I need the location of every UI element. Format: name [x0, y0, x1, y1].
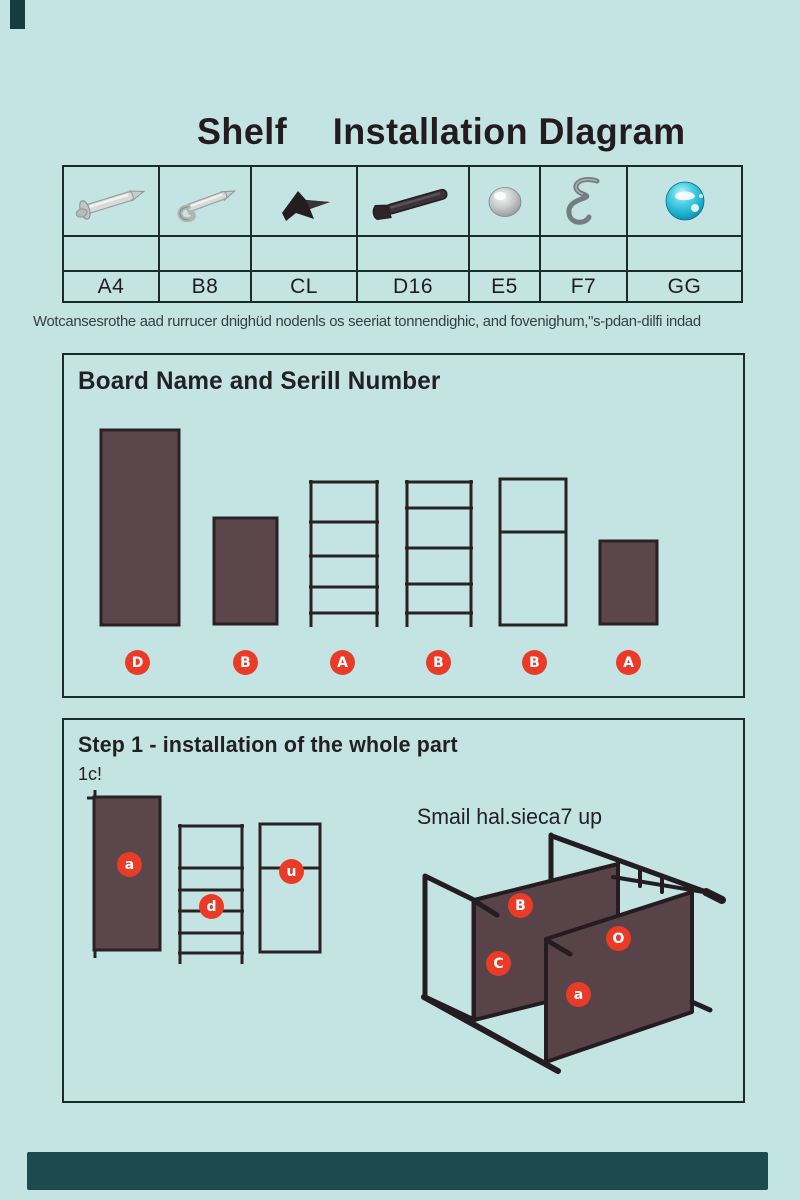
top-left-accent-bar: [10, 0, 25, 29]
part-label-cell: A4: [64, 272, 158, 301]
part-label: A4: [98, 275, 125, 299]
silver-hook-screw-icon: [162, 171, 248, 231]
part-image-cell: [541, 167, 626, 235]
part-label: F7: [571, 275, 597, 299]
empty-cell: [541, 237, 626, 270]
step-badge: d: [199, 894, 224, 919]
page-title: ShelfInstallation Dlagram: [197, 111, 686, 153]
board-badge: B: [522, 650, 547, 675]
black-clip-icon: [254, 171, 354, 231]
part-label: B8: [192, 275, 219, 299]
part-label-cell: F7: [541, 272, 626, 301]
board-ladder-frame-2: [405, 480, 473, 627]
board-badge: A: [616, 650, 641, 675]
empty-cell: [160, 237, 250, 270]
board-frame-divided: [500, 479, 566, 625]
silver-ball-icon: [475, 171, 535, 231]
part-label-cell: D16: [358, 272, 468, 301]
bottom-accent-bar: [27, 1152, 768, 1190]
s-hook-icon: [549, 169, 619, 233]
title-word-shelf: Shelf: [197, 111, 287, 152]
dark-bolt-icon: [360, 171, 466, 231]
part-label: D16: [393, 275, 433, 299]
step-shapes-drawing: [64, 720, 743, 1101]
title-word-diagram: Installation Dlagram: [333, 111, 686, 152]
teal-ball-icon: [645, 168, 725, 234]
empty-cell: [252, 237, 356, 270]
part-image-cell: [252, 167, 356, 235]
empty-cell: [628, 237, 741, 270]
part-image-cell: [358, 167, 468, 235]
iso-badge: C: [486, 951, 511, 976]
board-solid-tall: [101, 430, 179, 625]
part-label-cell: B8: [160, 272, 250, 301]
board-ladder-frame-1: [309, 480, 379, 627]
board-solid-small: [600, 541, 657, 624]
step-badge: a: [117, 852, 142, 877]
part-image-cell: [628, 167, 741, 235]
board-badge: B: [426, 650, 451, 675]
iso-badge: O: [606, 926, 631, 951]
isometric-assembly-drawing: [424, 835, 722, 1071]
part-label-cell: CL: [252, 272, 356, 301]
step-section: Step 1 - installation of the whole part …: [62, 718, 745, 1103]
empty-cell: [470, 237, 539, 270]
silver-screw-icon: [66, 171, 156, 231]
installation-poster: ShelfInstallation Dlagram: [0, 0, 800, 1200]
board-solid-medium: [214, 518, 277, 624]
board-section: Board Name and Serill Number: [62, 353, 745, 698]
part-image-cell: [470, 167, 539, 235]
board-badge: D: [125, 650, 150, 675]
empty-cell: [358, 237, 468, 270]
part-image-cell: [160, 167, 250, 235]
parts-table: A4 B8 CL D16 E5 F7 GG: [62, 165, 743, 303]
empty-cell: [64, 237, 158, 270]
part-label-cell: E5: [470, 272, 539, 301]
part-label: CL: [290, 275, 318, 299]
notes-line: Wotcansesrothe aad rurrucer dnighüd node…: [33, 313, 766, 330]
step-board-frame: [260, 824, 320, 952]
part-image-cell: [64, 167, 158, 235]
part-label: E5: [491, 275, 518, 299]
board-shapes-drawing: [64, 355, 743, 696]
iso-badge: B: [508, 893, 533, 918]
iso-badge: a: [566, 982, 591, 1007]
part-label: GG: [668, 275, 702, 299]
step-badge: u: [279, 859, 304, 884]
board-badge: A: [330, 650, 355, 675]
part-label-cell: GG: [628, 272, 741, 301]
board-badge: B: [233, 650, 258, 675]
